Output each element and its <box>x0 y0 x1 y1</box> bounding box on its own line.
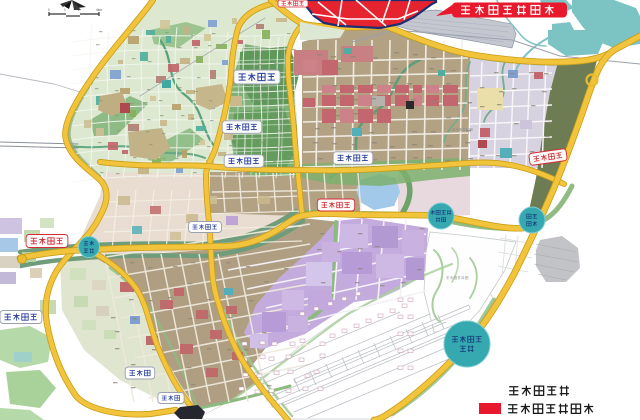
svg-text:4km: 4km <box>96 8 102 12</box>
svg-text:0: 0 <box>48 8 50 12</box>
svg-text:2: 2 <box>78 8 80 12</box>
svg-text:1: 1 <box>64 8 66 12</box>
